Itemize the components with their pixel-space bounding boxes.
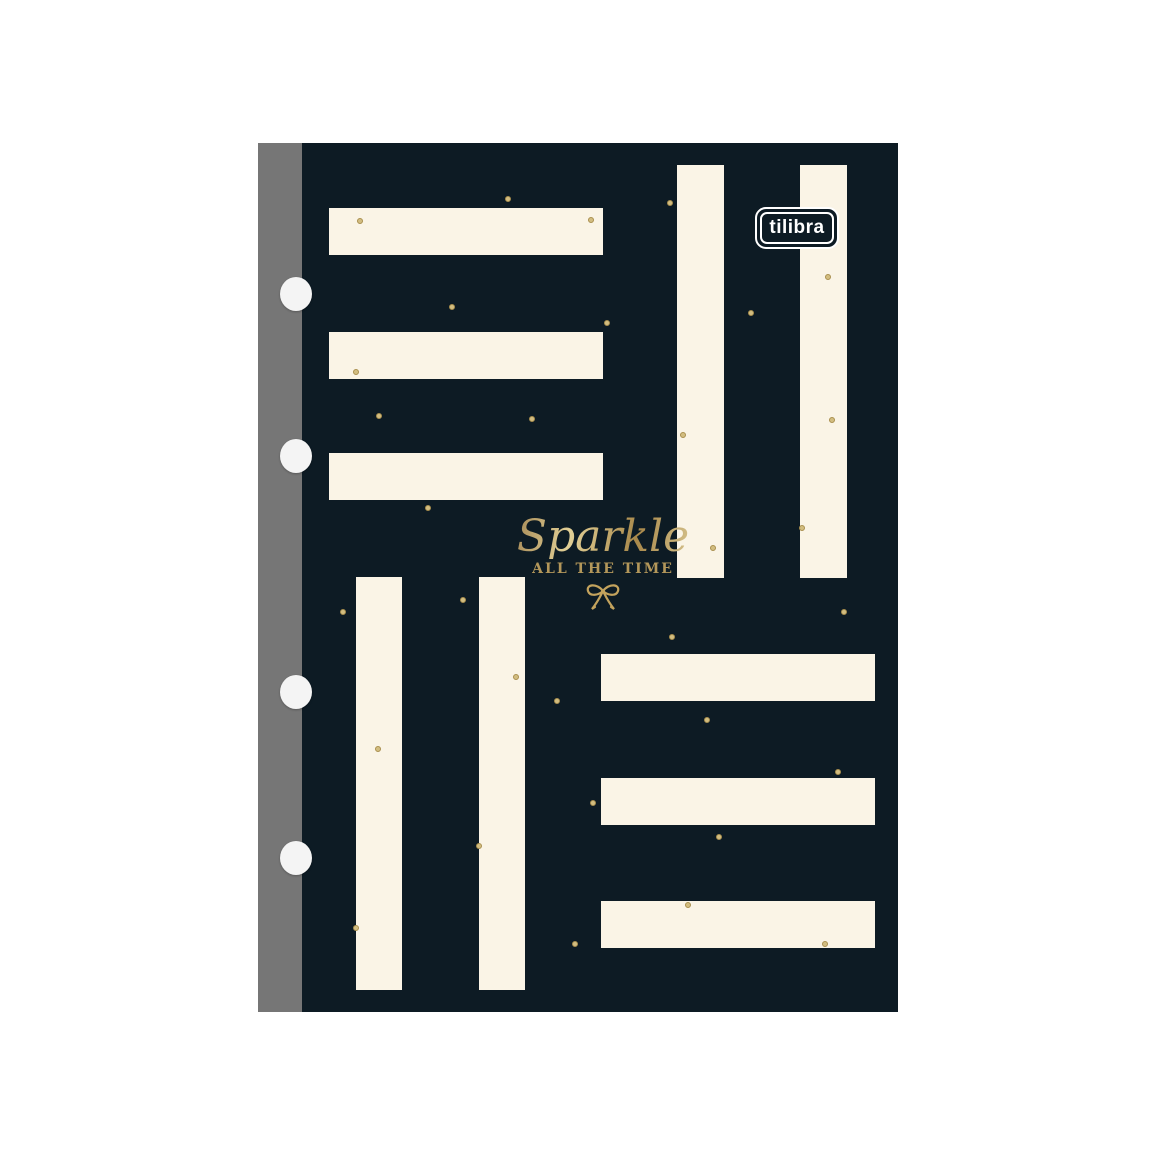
sparkle-dot (476, 843, 482, 849)
sparkle-dot (716, 834, 722, 840)
binder-hole (280, 841, 312, 875)
notebook: tilibra Sparkle ALL THE TIME (258, 143, 898, 1012)
sparkle-dot (841, 609, 847, 615)
sparkle-dot (704, 717, 710, 723)
sparkle-dot (572, 941, 578, 947)
spine (258, 143, 302, 1012)
stripe-bottom-right-horizontal (601, 654, 875, 701)
sparkle-dot (685, 902, 691, 908)
cover-title: Sparkle (493, 515, 713, 559)
sparkle-dot (425, 505, 431, 511)
stripe-bottom-right-horizontal (601, 901, 875, 948)
sparkle-dot (822, 941, 828, 947)
sparkle-dot (588, 217, 594, 223)
sparkle-dot (825, 274, 831, 280)
sparkle-dot (449, 304, 455, 310)
sparkle-dot (340, 609, 346, 615)
sparkle-dot (529, 416, 535, 422)
stripe-top-left-horizontal (329, 453, 603, 500)
sparkle-dot (505, 196, 511, 202)
binder-hole (280, 675, 312, 709)
stripe-bottom-left-vertical (479, 577, 525, 990)
sparkle-dot (357, 218, 363, 224)
sparkle-dot (353, 925, 359, 931)
notebook-cover: tilibra Sparkle ALL THE TIME (302, 143, 898, 1012)
cover-title-block: Sparkle ALL THE TIME (493, 515, 713, 619)
brand-logo-text: tilibra (769, 218, 824, 237)
stripe-bottom-left-vertical (356, 577, 402, 990)
stripe-top-left-horizontal (329, 208, 603, 255)
sparkle-dot (669, 634, 675, 640)
binder-hole (280, 439, 312, 473)
product-photo: tilibra Sparkle ALL THE TIME (0, 0, 1160, 1160)
brand-logo: tilibra (755, 207, 839, 249)
sparkle-dot (460, 597, 466, 603)
sparkle-dot (835, 769, 841, 775)
bow-icon (583, 580, 623, 614)
sparkle-dot (376, 413, 382, 419)
sparkle-dot (748, 310, 754, 316)
sparkle-dot (375, 746, 381, 752)
sparkle-dot (554, 698, 560, 704)
stripe-top-left-horizontal (329, 332, 603, 379)
brand-logo-frame: tilibra (760, 212, 834, 244)
sparkle-dot (667, 200, 673, 206)
sparkle-dot (513, 674, 519, 680)
sparkle-dot (590, 800, 596, 806)
sparkle-dot (604, 320, 610, 326)
binder-hole (280, 277, 312, 311)
stripe-bottom-right-horizontal (601, 778, 875, 825)
sparkle-dot (829, 417, 835, 423)
sparkle-dot (353, 369, 359, 375)
sparkle-dot (799, 525, 805, 531)
cover-subtitle: ALL THE TIME (493, 561, 713, 577)
sparkle-dot (680, 432, 686, 438)
